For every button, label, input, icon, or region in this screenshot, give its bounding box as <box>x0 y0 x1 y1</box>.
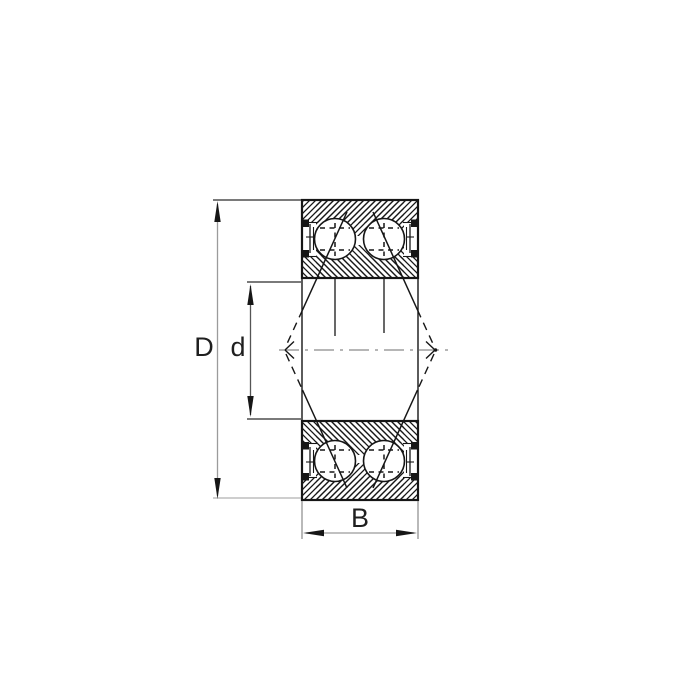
ball-centerlines <box>335 279 384 336</box>
arrowhead-up-icon <box>214 201 220 222</box>
arrowhead-up-icon <box>247 284 253 305</box>
arrowhead-down-icon <box>247 396 253 417</box>
label-outer-diameter: D <box>194 332 214 362</box>
bearing-cross-section-drawing: D d B <box>0 0 700 700</box>
arrowhead-down-icon <box>214 478 220 499</box>
dimension-B: B <box>302 501 418 539</box>
label-bore-diameter: d <box>230 332 245 362</box>
drawing-canvas: D d B <box>0 0 700 700</box>
bearing-section-bottom <box>301 421 419 501</box>
arrowhead-left-icon <box>303 530 324 536</box>
bearing-section-top <box>301 199 419 279</box>
arrowhead-right-icon <box>396 530 417 536</box>
label-width: B <box>351 503 369 533</box>
